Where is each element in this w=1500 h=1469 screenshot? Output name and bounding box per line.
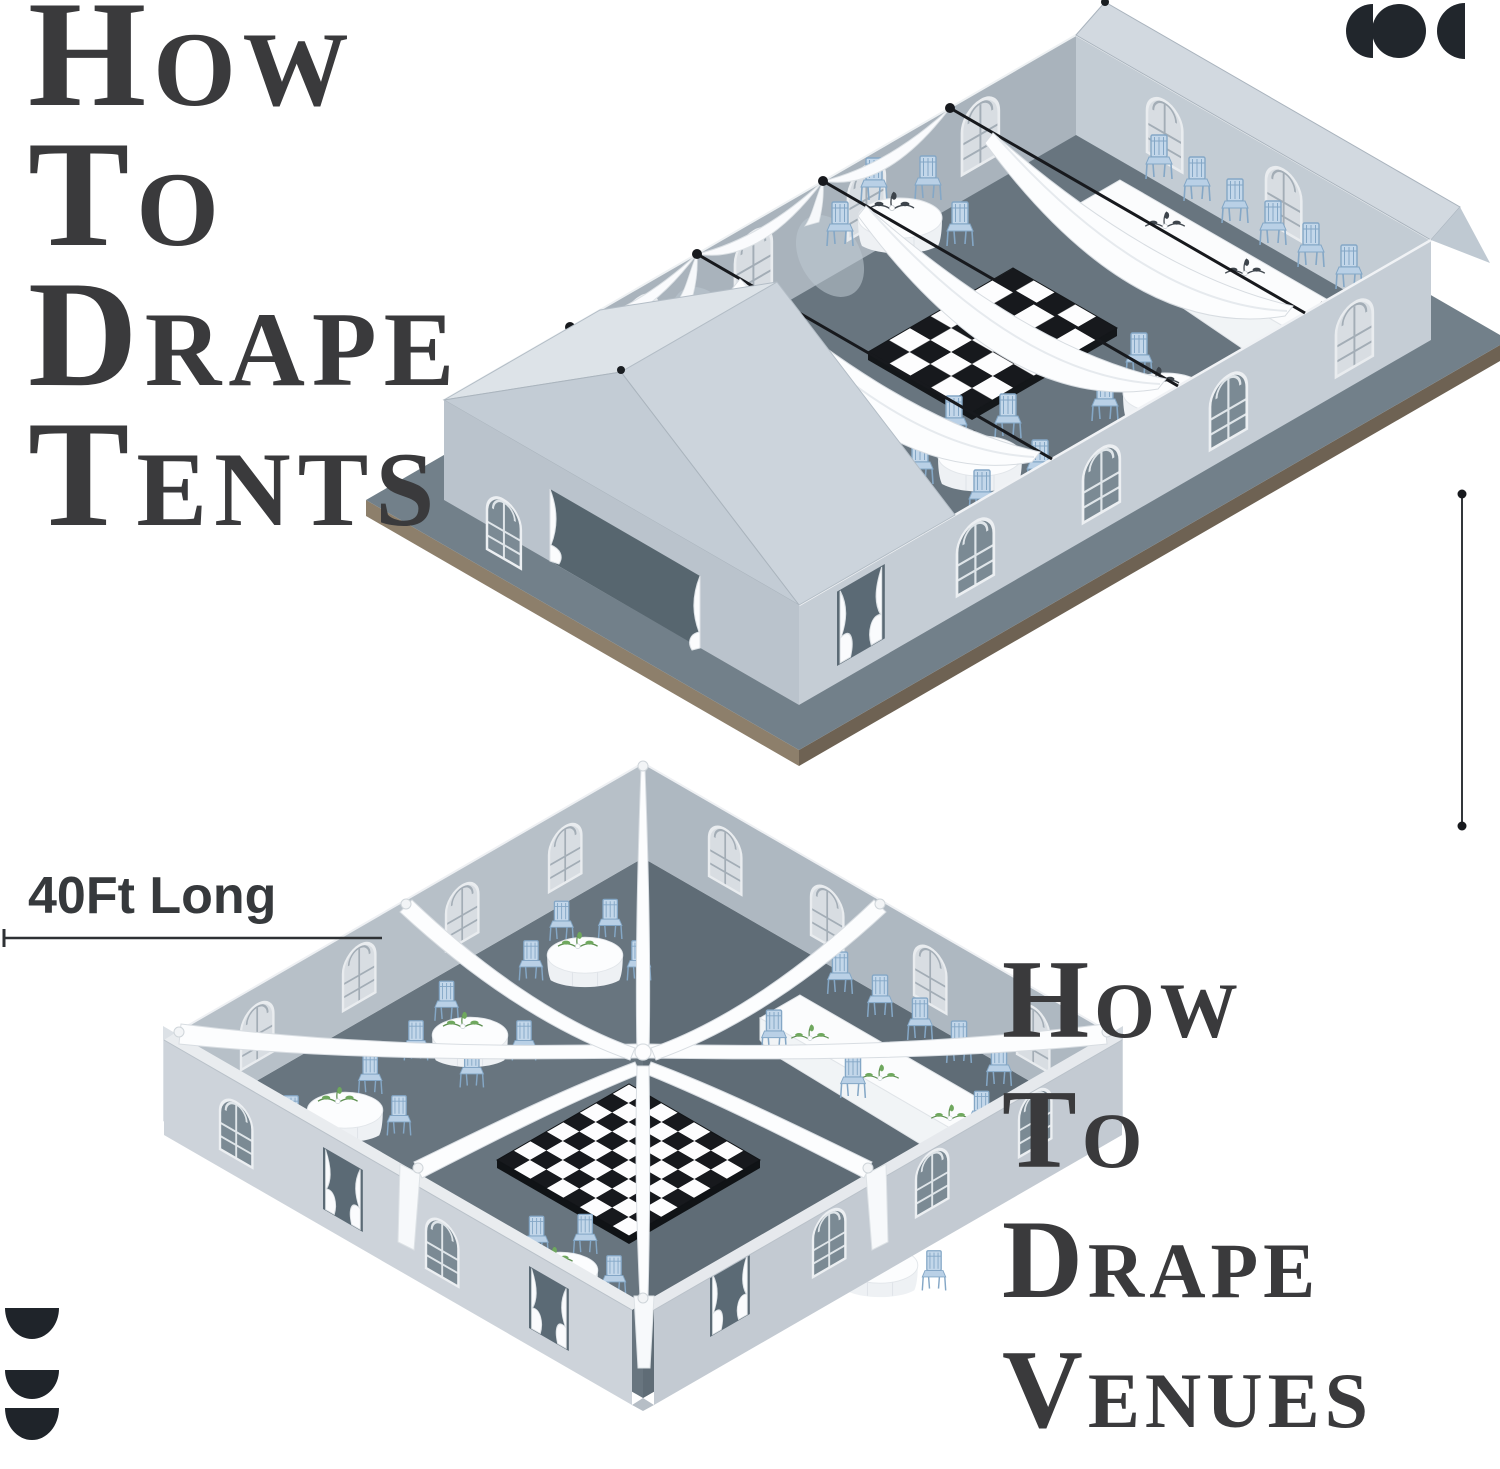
ridge-finial xyxy=(617,366,625,374)
headline-venues: How To Drape Venues xyxy=(1002,935,1373,1455)
headline-line: To xyxy=(1002,1065,1373,1195)
length-measure-line xyxy=(4,929,382,947)
length-measure-label: 40Ft Long xyxy=(28,866,276,926)
drape-anchor xyxy=(413,1163,423,1173)
venue-illustration xyxy=(163,761,1123,1411)
drape-anchor xyxy=(638,1293,648,1303)
drape-anchor xyxy=(638,761,648,771)
headline-tents: How To Drape Tents xyxy=(28,0,461,544)
stacked-discs-icon xyxy=(5,1308,59,1440)
headline-line: Venues xyxy=(1002,1325,1373,1455)
drape-anchor xyxy=(174,1027,184,1037)
headline-line: To xyxy=(28,124,461,264)
wall-corner xyxy=(632,1398,654,1411)
drape-tail xyxy=(634,1296,654,1368)
page: How To Drape Tents How To Drape Venues 4… xyxy=(0,0,1500,1469)
chair xyxy=(922,1251,945,1291)
drape-anchor xyxy=(401,899,411,909)
tent-illustration xyxy=(366,0,1500,766)
drape-ribbon xyxy=(636,1066,650,1298)
drape-knot xyxy=(635,1044,651,1060)
headline-line: Drape xyxy=(1002,1195,1373,1325)
drape-anchor xyxy=(875,899,885,909)
headline-line: How xyxy=(1002,935,1373,1065)
height-measure-line xyxy=(1458,490,1467,831)
logo-icon xyxy=(1346,3,1465,59)
drape-anchor xyxy=(863,1163,873,1173)
headline-line: Drape xyxy=(28,264,461,404)
headline-line: How xyxy=(28,0,461,124)
headline-line: Tents xyxy=(28,404,461,544)
